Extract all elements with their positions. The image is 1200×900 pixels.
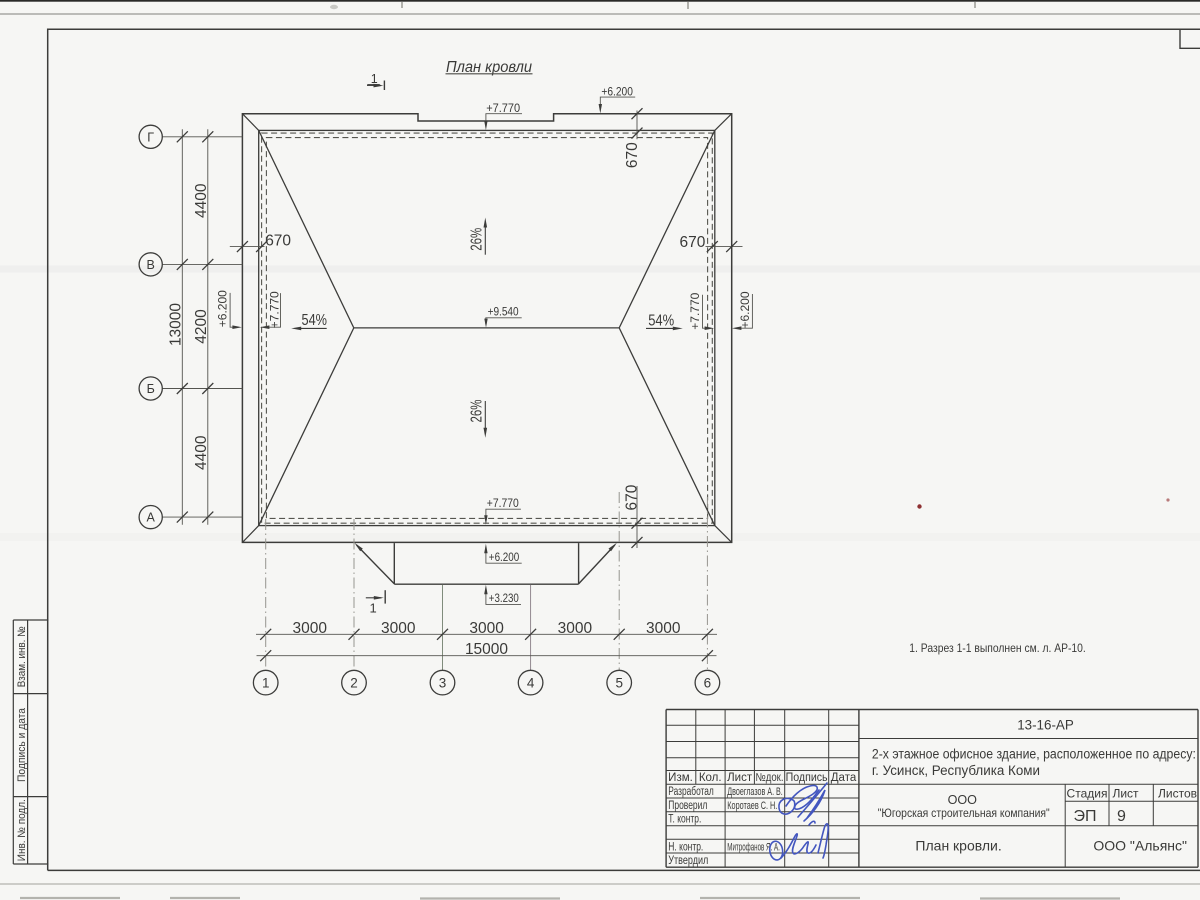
svg-text:Подпись и дата: Подпись и дата xyxy=(16,708,28,782)
svg-text:4400: 4400 xyxy=(193,183,210,218)
svg-text:4: 4 xyxy=(527,675,535,690)
svg-text:г. Усинск, Республика Коми: г. Усинск, Республика Коми xyxy=(872,763,1040,778)
svg-text:Разработал: Разработал xyxy=(668,786,714,798)
svg-text:3000: 3000 xyxy=(293,620,328,637)
svg-text:Проверил: Проверил xyxy=(668,800,707,812)
svg-text:1. Разрез 1-1 выполнен см. л.: 1. Разрез 1-1 выполнен см. л. АР-10. xyxy=(909,641,1086,655)
svg-text:ООО "Альянс": ООО "Альянс" xyxy=(1093,838,1187,854)
svg-text:3000: 3000 xyxy=(646,620,681,637)
svg-text:5: 5 xyxy=(615,675,623,690)
svg-text:Лист: Лист xyxy=(727,772,753,784)
svg-text:+6.200: +6.200 xyxy=(601,85,633,98)
svg-text:54%: 54% xyxy=(302,312,328,329)
svg-text:1: 1 xyxy=(371,72,378,86)
svg-text:Инв. № подл.: Инв. № подл. xyxy=(16,799,28,861)
svg-text:Изм.: Изм. xyxy=(668,772,693,784)
svg-text:Н. контр.: Н. контр. xyxy=(668,841,703,853)
svg-text:Подпись: Подпись xyxy=(786,772,828,784)
svg-text:+6.200: +6.200 xyxy=(216,290,230,327)
svg-text:ЭП: ЭП xyxy=(1074,808,1097,825)
svg-text:+7.770: +7.770 xyxy=(487,497,519,510)
svg-text:3000: 3000 xyxy=(558,620,593,637)
svg-text:Т. контр.: Т. контр. xyxy=(668,814,701,826)
svg-text:26%: 26% xyxy=(469,399,486,422)
svg-text:В: В xyxy=(147,258,155,272)
svg-text:"Югорская строительная компани: "Югорская строительная компания" xyxy=(878,806,1050,820)
svg-text:1: 1 xyxy=(262,675,270,690)
svg-text:670: 670 xyxy=(680,234,706,251)
svg-text:Лист: Лист xyxy=(1112,787,1139,801)
svg-text:Г: Г xyxy=(147,130,154,144)
svg-text:№док.: №док. xyxy=(756,772,784,784)
svg-text:Коротаев С. Н.: Коротаев С. Н. xyxy=(727,800,777,812)
svg-text:3000: 3000 xyxy=(381,620,416,637)
svg-text:Двоеглазов А. В.: Двоеглазов А. В. xyxy=(727,786,783,798)
svg-text:Взам. инв. №: Взам. инв. № xyxy=(16,626,28,687)
svg-text:6: 6 xyxy=(704,675,712,690)
svg-text:1: 1 xyxy=(370,600,377,615)
svg-text:+6.200: +6.200 xyxy=(489,551,520,564)
svg-text:+3.230: +3.230 xyxy=(489,592,519,605)
svg-text:+9.540: +9.540 xyxy=(488,306,519,319)
svg-text:А: А xyxy=(147,511,156,525)
svg-text:2-х этажное офисное здание, ра: 2-х этажное офисное здание, расположенно… xyxy=(872,747,1196,762)
svg-text:+7.770: +7.770 xyxy=(688,292,702,329)
svg-text:+7.770: +7.770 xyxy=(267,291,281,328)
svg-text:13000: 13000 xyxy=(168,303,185,346)
svg-text:Стадия: Стадия xyxy=(1067,787,1108,801)
svg-text:670: 670 xyxy=(624,484,641,510)
svg-text:План кровли.: План кровли. xyxy=(915,838,1001,854)
svg-text:Утвердил: Утвердил xyxy=(668,855,708,867)
svg-text:670: 670 xyxy=(624,142,641,168)
svg-text:54%: 54% xyxy=(648,313,674,330)
svg-text:Листов: Листов xyxy=(1158,787,1197,801)
svg-text:Дата: Дата xyxy=(831,772,857,784)
svg-text:+7.770: +7.770 xyxy=(486,102,520,115)
svg-text:+6.200: +6.200 xyxy=(738,291,752,328)
svg-text:2: 2 xyxy=(350,675,358,690)
svg-text:3000: 3000 xyxy=(469,620,504,637)
svg-text:Б: Б xyxy=(147,382,155,396)
svg-text:26%: 26% xyxy=(469,228,486,251)
svg-text:Кол.: Кол. xyxy=(699,772,722,784)
svg-text:3: 3 xyxy=(439,675,447,690)
svg-text:15000: 15000 xyxy=(465,641,508,658)
svg-text:13-16-АР: 13-16-АР xyxy=(1017,718,1074,733)
svg-text:9: 9 xyxy=(1117,808,1126,825)
svg-text:4400: 4400 xyxy=(193,435,210,470)
svg-text:670: 670 xyxy=(265,232,291,249)
svg-text:4200: 4200 xyxy=(193,309,210,344)
